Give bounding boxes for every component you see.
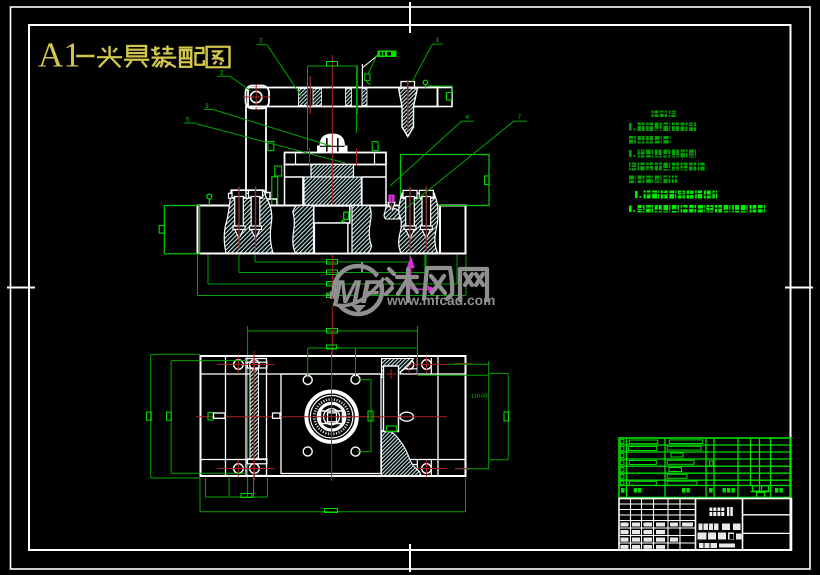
svg-text:110.00: 110.00	[471, 394, 487, 400]
svg-text:3: 3	[205, 103, 209, 110]
svg-text:5: 5	[186, 117, 190, 124]
svg-text:2: 2	[259, 38, 263, 45]
svg-text:MF: MF	[333, 273, 381, 310]
svg-text:A1: A1	[38, 36, 81, 75]
svg-text:4: 4	[466, 114, 470, 121]
svg-text:www.mfcad.com: www.mfcad.com	[386, 293, 495, 308]
svg-text:1: 1	[436, 37, 440, 44]
svg-text:7: 7	[518, 114, 522, 121]
svg-text:2: 2	[220, 70, 224, 77]
